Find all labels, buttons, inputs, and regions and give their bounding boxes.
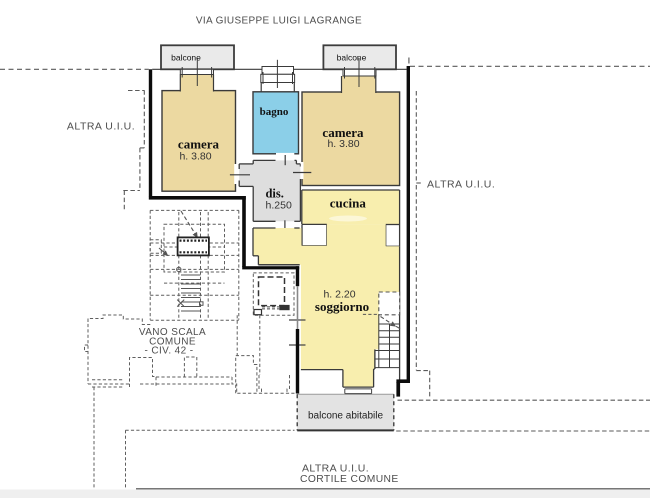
svg-text:balcone: balcone	[171, 53, 201, 63]
svg-text:ALTRA U.I.U.: ALTRA U.I.U.	[302, 463, 369, 475]
svg-text:- CIV. 42 -: - CIV. 42 -	[144, 345, 193, 356]
svg-text:soggiorno: soggiorno	[315, 299, 369, 314]
svg-text:balcone abitabile: balcone abitabile	[308, 410, 383, 421]
svg-text:VIA GIUSEPPE LUIGI LAGRANGE: VIA GIUSEPPE LUIGI LAGRANGE	[196, 15, 362, 26]
svg-text:ALTRA U.I.U.: ALTRA U.I.U.	[67, 120, 135, 132]
svg-text:camera: camera	[178, 137, 220, 152]
svg-text:h. 3.80: h. 3.80	[179, 151, 211, 163]
svg-text:bagno: bagno	[260, 106, 289, 118]
svg-text:ALTRA U.I.U.: ALTRA U.I.U.	[427, 178, 495, 190]
svg-text:h. 3.80: h. 3.80	[327, 138, 359, 150]
svg-text:cucina: cucina	[330, 195, 367, 210]
svg-text:balcone: balcone	[337, 53, 367, 63]
svg-text:dis.: dis.	[265, 187, 283, 201]
svg-text:h.250: h.250	[266, 200, 292, 212]
svg-text:CORTILE COMUNE: CORTILE COMUNE	[300, 474, 399, 485]
